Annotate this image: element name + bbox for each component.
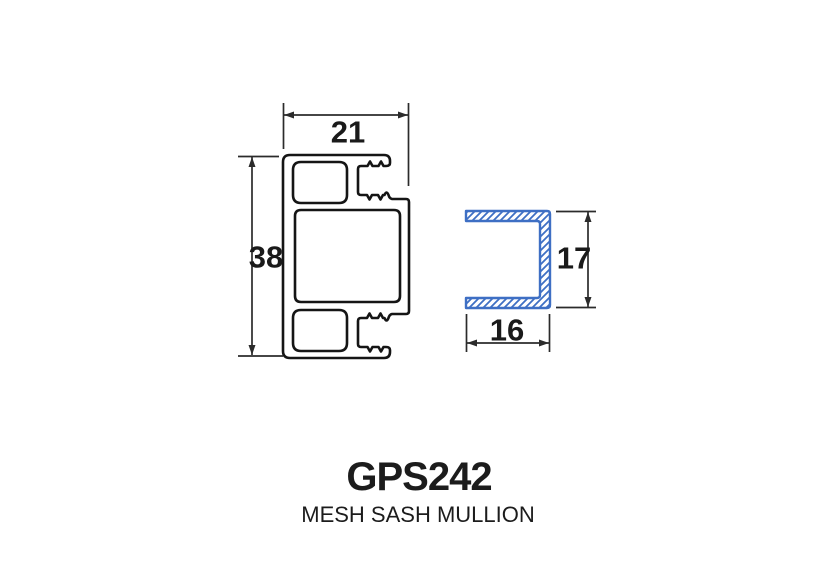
dim-label-channel-height: 17: [557, 243, 591, 274]
catalog-drawing-page: 21 38 17 16 GPS242 MESH SASH MULLION: [0, 0, 837, 587]
dim-label-channel-width: 16: [490, 315, 524, 346]
mesh-channel-profile-section: [466, 211, 550, 308]
profile-name-subtitle: MESH SASH MULLION: [301, 504, 535, 526]
dim-label-mullion-height: 38: [249, 242, 283, 273]
mullion-profile-section: [283, 155, 409, 358]
dim-label-mullion-width: 21: [331, 117, 365, 148]
profile-code-title: GPS242: [346, 457, 491, 497]
